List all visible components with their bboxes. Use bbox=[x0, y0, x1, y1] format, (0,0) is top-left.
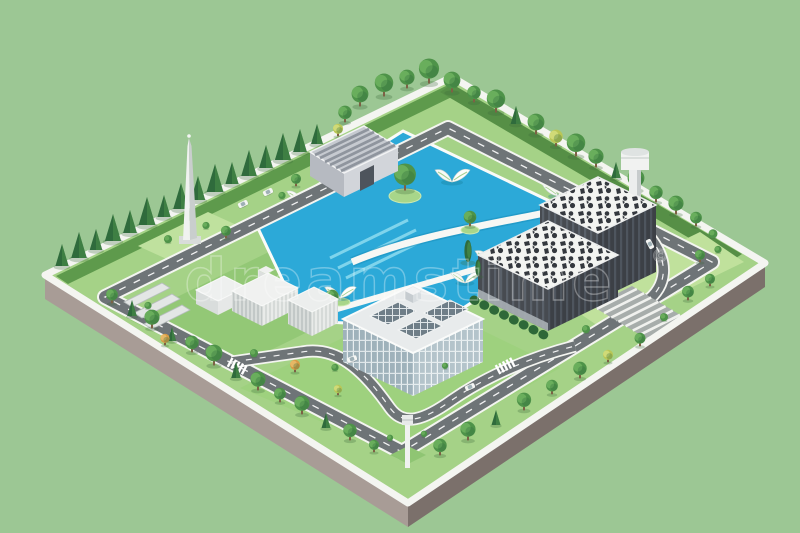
tree bbox=[278, 192, 285, 200]
watermark-copyright: © bbox=[651, 246, 669, 267]
tree bbox=[549, 130, 562, 149]
tree bbox=[709, 229, 718, 239]
tree bbox=[144, 310, 159, 332]
tree bbox=[467, 86, 480, 105]
tree bbox=[421, 431, 427, 438]
obelisk-finial bbox=[187, 134, 191, 138]
tree bbox=[705, 274, 715, 289]
tree bbox=[442, 363, 448, 370]
tree bbox=[695, 250, 705, 265]
tree bbox=[399, 70, 414, 92]
tree bbox=[603, 350, 613, 365]
tree bbox=[202, 222, 209, 230]
tree bbox=[274, 388, 286, 405]
tree bbox=[106, 289, 118, 306]
tree bbox=[206, 345, 223, 369]
tree bbox=[343, 424, 356, 443]
tree bbox=[444, 72, 461, 96]
tree bbox=[250, 349, 258, 358]
tree bbox=[714, 246, 721, 254]
tree bbox=[582, 325, 590, 334]
water-tower-roof bbox=[621, 148, 649, 156]
tree bbox=[419, 59, 439, 88]
tree bbox=[290, 360, 300, 375]
tree bbox=[682, 286, 694, 303]
tree bbox=[185, 336, 198, 355]
tree bbox=[164, 235, 172, 244]
tree bbox=[517, 393, 531, 414]
watermark: dreamstime bbox=[185, 246, 616, 314]
tree bbox=[464, 211, 477, 229]
tree bbox=[487, 90, 505, 116]
tree bbox=[546, 380, 558, 397]
tree bbox=[660, 313, 668, 322]
tree bbox=[250, 372, 265, 394]
tree bbox=[291, 174, 301, 189]
tree bbox=[635, 333, 646, 349]
tree bbox=[528, 114, 545, 138]
tree bbox=[433, 439, 446, 458]
scene-canvas: dreamstime © bbox=[0, 0, 800, 533]
tree bbox=[460, 422, 475, 444]
tree bbox=[352, 86, 369, 110]
tree bbox=[387, 435, 393, 442]
tree bbox=[690, 212, 702, 229]
tree bbox=[369, 440, 379, 455]
monument-pole bbox=[405, 424, 410, 468]
tree bbox=[588, 149, 603, 171]
tree bbox=[144, 302, 151, 310]
tree bbox=[375, 74, 393, 100]
tree bbox=[294, 396, 309, 418]
tree bbox=[331, 364, 338, 372]
tree bbox=[334, 385, 342, 398]
tree bbox=[160, 334, 169, 348]
tree bbox=[221, 226, 231, 241]
tree bbox=[573, 362, 586, 381]
tree bbox=[668, 196, 683, 218]
isometric-city-illustration: dreamstime © bbox=[0, 0, 800, 533]
tree bbox=[567, 134, 585, 160]
tree bbox=[338, 106, 351, 125]
